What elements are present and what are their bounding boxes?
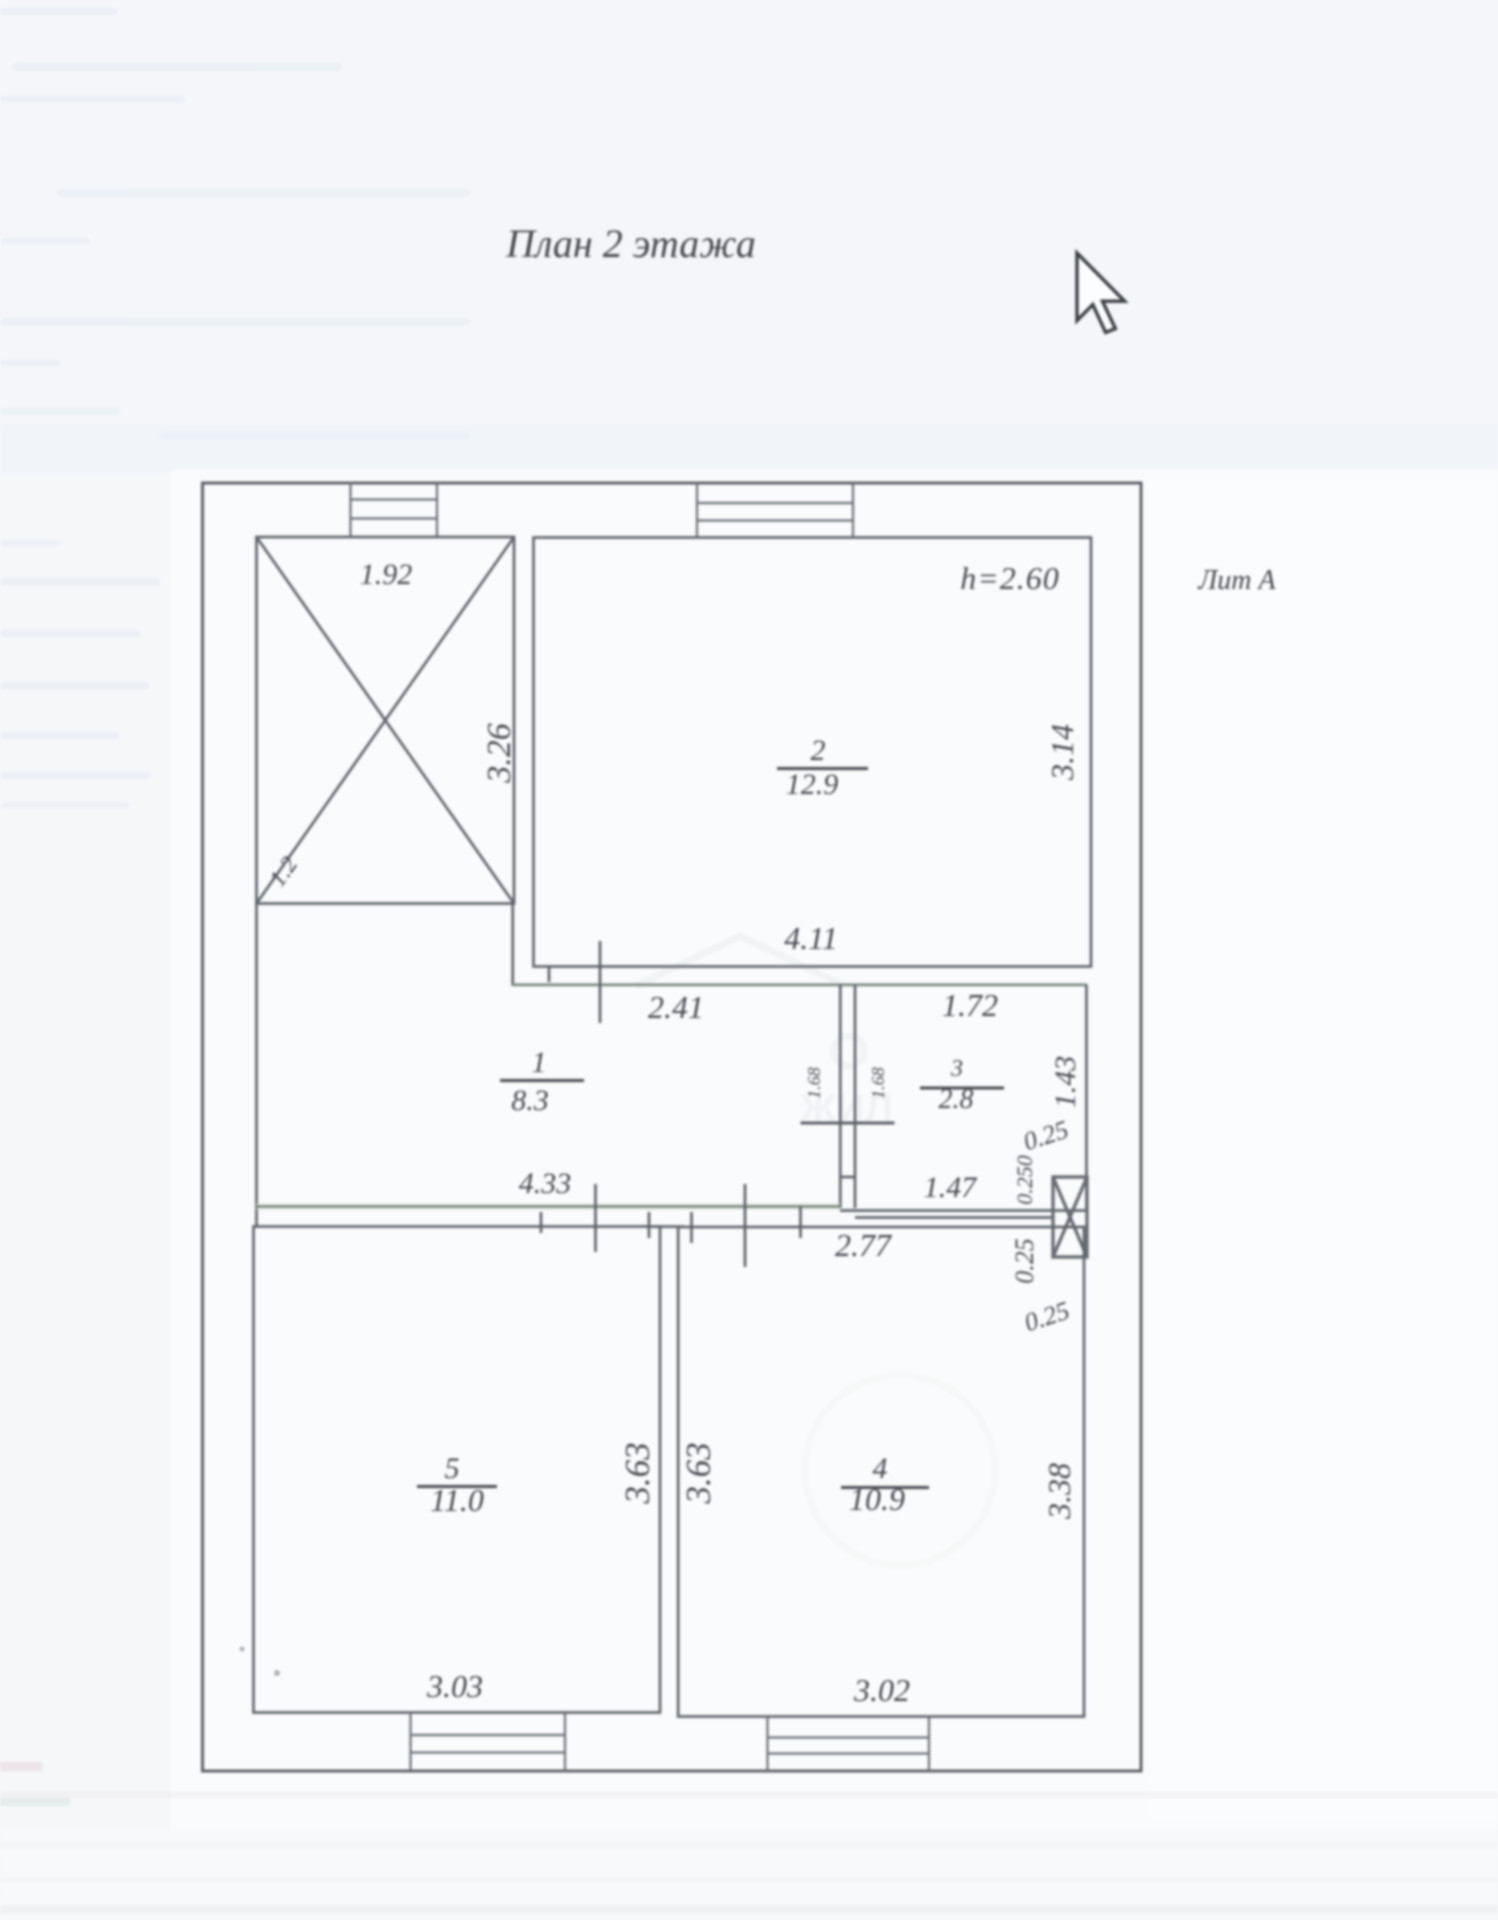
svg-text:0.250: 0.250 — [1012, 1155, 1037, 1205]
svg-text:2.77: 2.77 — [835, 1227, 893, 1263]
svg-text:4.33: 4.33 — [519, 1167, 572, 1200]
svg-text:1: 1 — [532, 1046, 547, 1079]
svg-text:План 2 этажа: План 2 этажа — [505, 221, 756, 266]
svg-text:3.63: 3.63 — [679, 1442, 718, 1504]
svg-text:2.41: 2.41 — [648, 989, 704, 1025]
svg-text:1.68: 1.68 — [804, 1067, 824, 1099]
svg-text:1.47: 1.47 — [924, 1171, 979, 1204]
svg-text:3.63: 3.63 — [618, 1442, 657, 1504]
svg-text:4.11: 4.11 — [784, 920, 838, 956]
svg-text:3.14: 3.14 — [1044, 724, 1080, 781]
svg-text:1.68: 1.68 — [868, 1067, 888, 1099]
svg-text:3.26: 3.26 — [481, 723, 518, 784]
svg-text:1.92: 1.92 — [360, 558, 413, 591]
svg-text:3.02: 3.02 — [853, 1672, 910, 1708]
svg-text:1.43: 1.43 — [1049, 1056, 1082, 1109]
svg-text:3: 3 — [950, 1056, 963, 1082]
svg-text:8.3: 8.3 — [511, 1084, 549, 1117]
svg-text:Лит А: Лит А — [1197, 565, 1276, 596]
svg-text:5: 5 — [445, 1452, 460, 1485]
svg-text:1.72: 1.72 — [942, 987, 998, 1023]
svg-text:12.9: 12.9 — [786, 768, 839, 801]
svg-text:h=2.60: h=2.60 — [960, 560, 1060, 596]
svg-text:3.38: 3.38 — [1041, 1463, 1077, 1520]
svg-text:3.03: 3.03 — [426, 1668, 483, 1704]
svg-text:2: 2 — [811, 734, 826, 767]
svg-text:0.25: 0.25 — [1010, 1238, 1039, 1284]
